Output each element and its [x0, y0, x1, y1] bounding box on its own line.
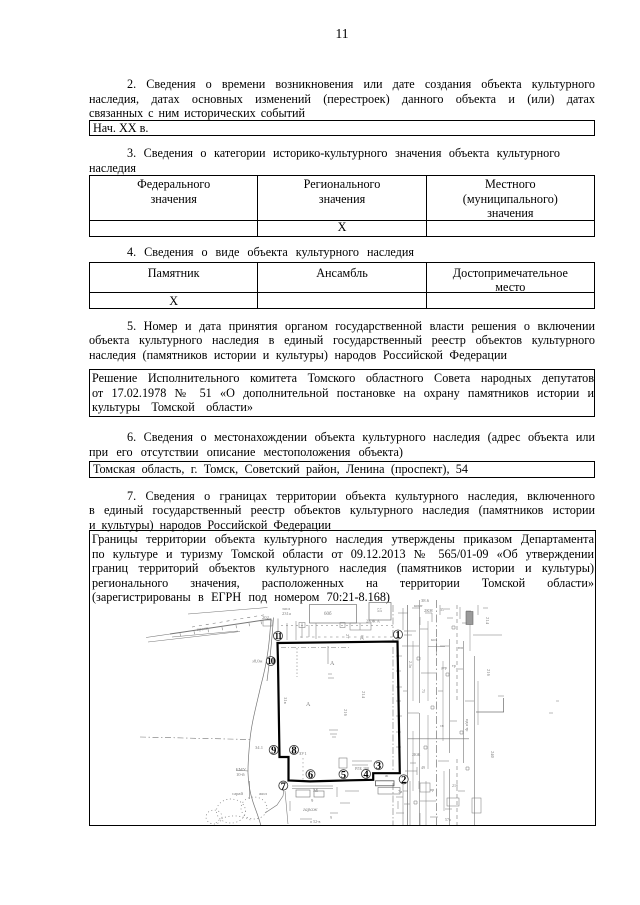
svg-text:2КН: 2КН: [424, 608, 433, 613]
svg-text:9: 9: [271, 745, 276, 756]
svg-text:ЗУ1: ЗУ1: [299, 751, 307, 756]
svg-text:з8,0м: з8,0м: [252, 658, 263, 664]
svg-text:60б: 60б: [324, 612, 332, 617]
svg-text:202: 202: [262, 615, 270, 620]
svg-text:А: А: [330, 661, 335, 667]
svg-text:кол: кол: [431, 637, 437, 642]
svg-text:М: М: [313, 788, 318, 794]
svg-text:240: 240: [490, 751, 495, 759]
svg-text:А: А: [306, 702, 311, 708]
svg-text:конт: конт: [414, 603, 423, 608]
svg-text:6: 6: [308, 769, 313, 780]
svg-text:21б: 21б: [452, 783, 458, 788]
svg-text:1: 1: [395, 630, 400, 641]
svg-text:231а: 231а: [282, 611, 291, 616]
svg-text:31в: 31в: [283, 697, 288, 705]
svg-text:8: 8: [291, 745, 296, 756]
svg-text:75: 75: [421, 689, 426, 693]
svg-text:7а: 7а: [398, 789, 402, 794]
svg-text:55: 55: [377, 609, 383, 614]
svg-text:2: 2: [401, 775, 406, 786]
svg-text:57а: 57а: [445, 817, 451, 822]
svg-text:2.1в: 2.1в: [408, 661, 413, 668]
svg-text:сарай: сарай: [232, 791, 243, 796]
svg-text:4: 4: [363, 769, 369, 780]
svg-text:27: 27: [345, 634, 350, 639]
svg-text:св: св: [440, 723, 444, 728]
svg-text:216: 216: [343, 709, 348, 717]
svg-text:просп: просп: [196, 625, 209, 632]
svg-text:5: 5: [341, 769, 346, 780]
svg-text:одн тр: одн тр: [465, 719, 470, 732]
svg-text:2КЖ А: 2КЖ А: [366, 618, 381, 623]
svg-text:34.1: 34.1: [255, 745, 264, 750]
svg-text:п 52-в: п 52-в: [310, 819, 320, 824]
svg-text:жил: жил: [258, 791, 268, 796]
svg-text:38.6: 38.6: [421, 598, 430, 603]
svg-text:юп: юп: [458, 645, 464, 650]
svg-text:9: 9: [311, 798, 314, 803]
svg-text:35: 35: [440, 607, 444, 612]
svg-text:7: 7: [281, 781, 286, 792]
svg-text:49: 49: [421, 765, 425, 770]
svg-text:тр: тр: [452, 663, 456, 668]
svg-text:дер: дер: [441, 665, 447, 670]
svg-text:214: 214: [485, 617, 490, 625]
svg-text:216: 216: [486, 669, 491, 677]
svg-text:10-й: 10-й: [236, 772, 245, 777]
svg-text:9: 9: [330, 815, 332, 820]
svg-text:гараж: гараж: [303, 807, 318, 813]
svg-text:Д: Д: [360, 635, 364, 641]
svg-text:3: 3: [376, 760, 381, 771]
svg-text:2КЖ: 2КЖ: [412, 752, 421, 757]
svg-text:214: 214: [361, 691, 366, 699]
svg-text:10: 10: [267, 656, 276, 666]
svg-text:пр: пр: [430, 787, 434, 792]
